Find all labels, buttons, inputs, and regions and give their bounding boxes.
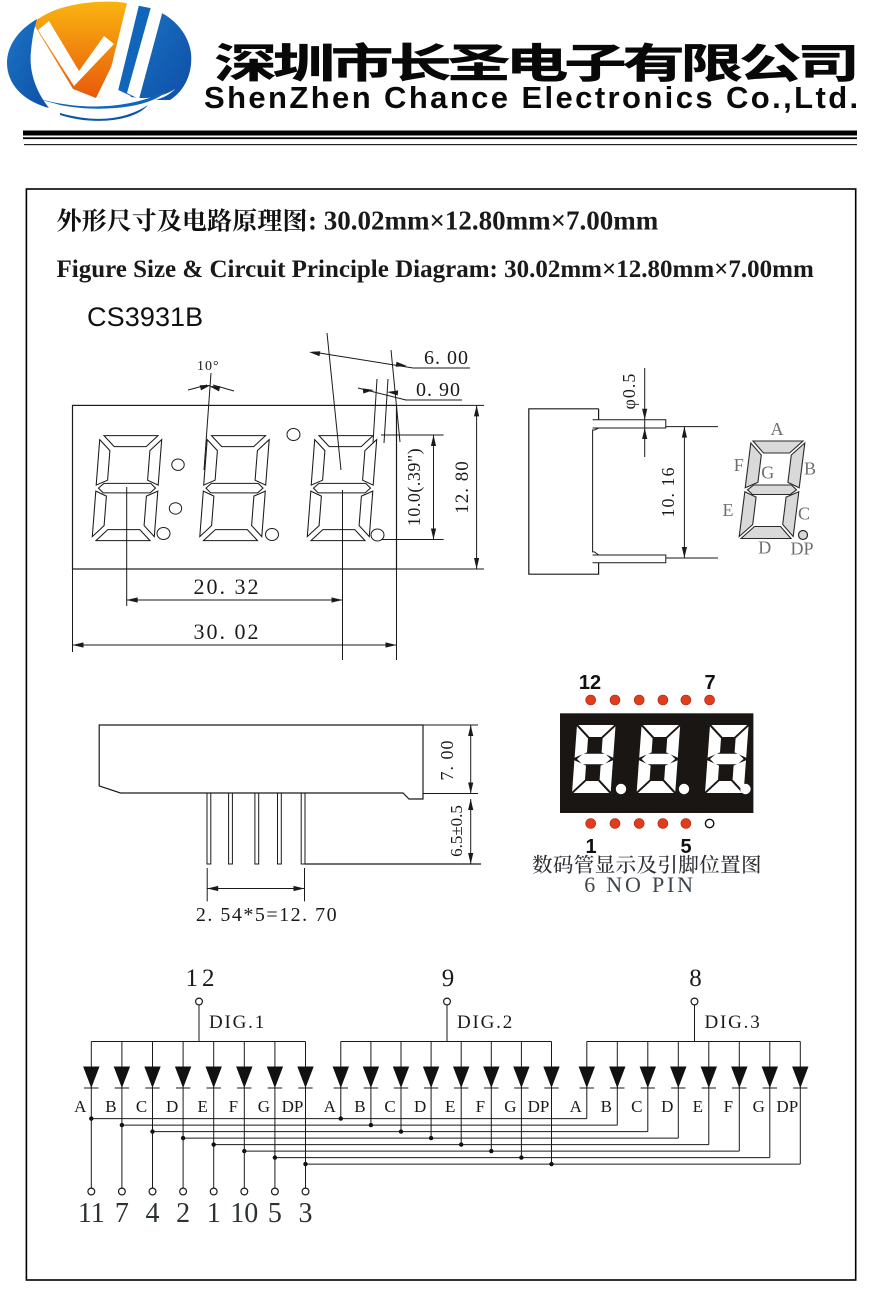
svg-text:DP: DP (790, 539, 813, 559)
svg-text:20. 32: 20. 32 (194, 574, 261, 599)
svg-text:CS3931B: CS3931B (87, 302, 203, 332)
svg-text:7: 7 (115, 1198, 129, 1229)
svg-text:0. 90: 0. 90 (416, 379, 461, 401)
svg-text:7. 00: 7. 00 (437, 740, 457, 781)
svg-text:E: E (723, 500, 734, 520)
svg-text:B: B (804, 459, 816, 479)
svg-text:B: B (601, 1097, 612, 1116)
svg-text:G: G (753, 1097, 765, 1116)
svg-text:3: 3 (299, 1198, 313, 1229)
svg-text:F: F (724, 1097, 733, 1116)
svg-text:φ0.5: φ0.5 (619, 373, 639, 410)
svg-text:A: A (771, 419, 784, 439)
svg-text:D: D (758, 538, 771, 558)
svg-text:D: D (661, 1097, 673, 1116)
svg-text:9: 9 (442, 965, 459, 992)
svg-text:12: 12 (579, 672, 601, 694)
svg-text:6.5±0.5: 6.5±0.5 (447, 805, 466, 857)
svg-text:11: 11 (78, 1198, 105, 1229)
svg-text:30. 02: 30. 02 (194, 619, 261, 644)
svg-text:1: 1 (207, 1198, 221, 1229)
svg-text:DP: DP (776, 1097, 798, 1116)
svg-text:6 NO PIN: 6 NO PIN (584, 872, 696, 897)
svg-text:D: D (166, 1097, 178, 1116)
svg-text:10: 10 (230, 1198, 258, 1229)
svg-text:10. 16: 10. 16 (658, 467, 678, 518)
svg-text:6. 00: 6. 00 (424, 347, 469, 369)
svg-text:5: 5 (680, 836, 691, 858)
svg-text:A: A (570, 1097, 583, 1116)
svg-text:5: 5 (268, 1198, 282, 1229)
svg-text:10.0(.39"): 10.0(.39") (404, 448, 425, 526)
svg-text:G: G (504, 1097, 516, 1116)
svg-text:F: F (476, 1097, 485, 1116)
svg-text:2: 2 (176, 1198, 190, 1229)
svg-text:DP: DP (282, 1097, 304, 1116)
svg-text:10°: 10° (197, 359, 220, 374)
svg-text:A: A (74, 1097, 87, 1116)
svg-text:E: E (198, 1097, 208, 1116)
svg-text:12. 80: 12. 80 (452, 460, 473, 514)
svg-text:2. 54*5=12. 70: 2. 54*5=12. 70 (196, 904, 338, 926)
svg-text:C: C (384, 1097, 395, 1116)
svg-text:7: 7 (704, 672, 715, 694)
svg-text:DP: DP (528, 1097, 550, 1116)
svg-text:D: D (414, 1097, 426, 1116)
svg-text:B: B (354, 1097, 365, 1116)
svg-text:G: G (761, 463, 774, 483)
svg-text:G: G (258, 1097, 270, 1116)
svg-text:B: B (105, 1097, 116, 1116)
svg-text:A: A (324, 1097, 337, 1116)
svg-text:DIG.2: DIG.2 (457, 1012, 514, 1033)
svg-text:C: C (798, 504, 810, 524)
svg-text:E: E (445, 1097, 455, 1116)
svg-text:F: F (229, 1097, 238, 1116)
svg-text:E: E (693, 1097, 703, 1116)
svg-text:C: C (631, 1097, 642, 1116)
svg-text:1: 1 (585, 836, 596, 858)
svg-text:C: C (136, 1097, 147, 1116)
svg-text:4: 4 (146, 1198, 160, 1229)
svg-text:: 30.02mm×12.80mm×7.00mm: : 30.02mm×12.80mm×7.00mm (308, 206, 659, 236)
svg-text:8: 8 (689, 965, 706, 992)
svg-text:DIG.1: DIG.1 (209, 1012, 266, 1033)
svg-text:DIG.3: DIG.3 (705, 1012, 762, 1033)
svg-text:12: 12 (186, 965, 219, 992)
svg-text:ShenZhen Chance Electronics Co: ShenZhen Chance Electronics Co.,Ltd. (204, 80, 861, 115)
svg-text:Figure Size & Circuit Principl: Figure Size & Circuit Principle Diagram:… (57, 256, 814, 283)
svg-text:F: F (734, 455, 744, 475)
